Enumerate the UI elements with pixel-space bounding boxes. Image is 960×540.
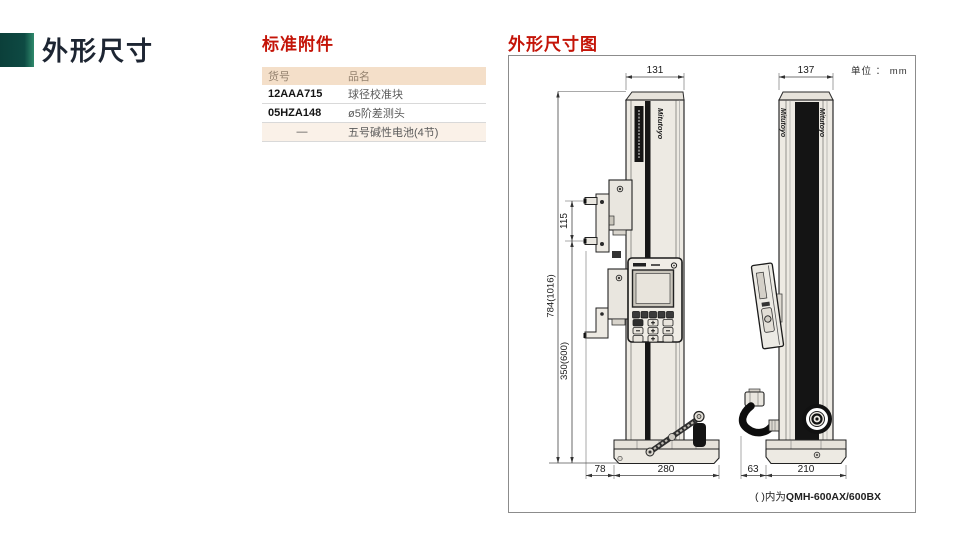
brand-logo: Mitutoyo [779,108,786,138]
part-name: 五号碱性电池(4节) [342,123,486,142]
dim-front-offset: 78 [594,464,606,475]
section-accent-square [0,33,34,67]
lower-bracket [585,308,608,338]
upper-probe-arm [585,198,597,205]
accessories-header-row: 货号 品名 [262,67,486,85]
clamp-knob [693,423,706,447]
control-panel [628,258,682,342]
catalog-page: { "page": { "title": "外形尺寸" }, "accessor… [0,0,960,540]
col-header-code: 货号 [262,67,342,85]
function-buttons [633,312,674,319]
dimension-drawing-frame: 单位 ： mm 131 [508,55,916,513]
col-header-name: 品名 [342,67,486,85]
lower-probe-arm [585,238,597,245]
accessories-heading: 标准附件 [262,30,334,55]
dim-measuring-range: 350(600) [559,342,570,380]
side-column: Mitutoyo Mitutoyo [779,92,833,451]
note-prefix: ( )内为 [755,491,786,503]
model-note: ( )内为QMH-600AX/600BX [755,489,881,504]
part-name: 球径校准块 [342,85,486,104]
dim-side-width: 137 [798,65,815,76]
part-code: — [262,123,342,142]
brand-logo: Mitutoyo [818,108,825,138]
dimension-drawing: 131 Mitutoyo [509,56,915,512]
part-name: ø5阶差测头 [342,104,486,123]
accessories-table: 货号 品名 12AAA715 球径校准块 05HZA148 ø5阶差测头 — 五… [262,67,486,142]
table-row: 05HZA148 ø5阶差测头 [262,104,486,123]
table-row: — 五号碱性电池(4节) [262,123,486,142]
dim-side-offset: 63 [747,464,759,475]
keypad [633,320,673,343]
page-title: 外形尺寸 [42,31,154,68]
dim-front-depth: 280 [658,464,675,475]
probe-assembly [584,180,633,338]
hook-handle [743,389,779,433]
side-view: 137 Mitutoyo Mitutoyo [741,65,846,479]
column-rail-strip [795,102,819,449]
dim-probe-span: 115 [559,213,570,229]
part-code: 12AAA715 [262,85,342,104]
side-base [766,440,846,464]
drawing-heading: 外形尺寸图 [508,30,598,55]
table-row: 12AAA715 球径校准块 [262,85,486,104]
dim-column-height: 784(1016) [546,274,557,317]
brand-logo: Mitutoyo [656,108,665,140]
note-model: QMH-600AX/600BX [786,491,881,503]
dim-side-depth: 210 [798,464,815,475]
front-view: 131 Mitutoyo [546,65,720,479]
dim-front-width: 131 [647,65,664,76]
part-code: 05HZA148 [262,104,342,123]
hand-wheel [804,406,830,432]
